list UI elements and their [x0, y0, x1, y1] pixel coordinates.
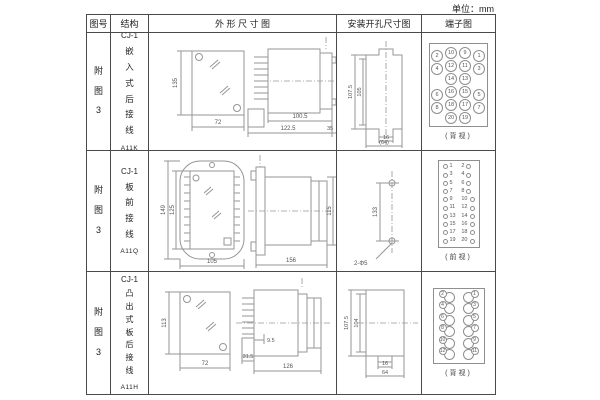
page: 单位：mm 图号 结构 外 形 尺 寸 图 安装开孔尺寸图 端子图 附图3 CJ…: [0, 0, 600, 400]
header-figure-no: 图号: [87, 15, 111, 33]
terminal-number: 17: [450, 230, 456, 236]
terminal-hole: [443, 181, 448, 186]
terminal-pin: 9: [459, 47, 471, 59]
terminal-hole: [443, 206, 448, 211]
terminal-number: 3: [450, 172, 453, 178]
structure-prefix-a11q: CJ-1: [121, 167, 138, 176]
terminal-hole: [466, 181, 471, 186]
outline-drawing-a11h: 113 72: [150, 274, 336, 392]
terminal-number: 1: [471, 290, 479, 298]
structure-prefix-a11k: CJ-1: [121, 33, 138, 40]
dim-tab-width-a11h: 16: [381, 361, 387, 367]
terminal-number: 6: [439, 313, 447, 321]
terminal-pin: 1: [473, 50, 485, 62]
dim-front-height-a11h: 113: [162, 318, 168, 328]
terminal-number: 5: [450, 181, 453, 187]
terminal-number: 6: [461, 181, 464, 187]
side-view-a11q: 156 115: [248, 155, 336, 268]
dim-total-width-a11h: 64: [381, 370, 387, 376]
terminal-pin: 13: [459, 73, 471, 85]
header-terminal-diagram: 端子图: [422, 15, 495, 33]
terminal-left-column: 1 3 5 7 9 11 13 15 17 19: [443, 164, 456, 244]
front-view-a11h: 113 72: [162, 292, 230, 371]
figure-no-a11h: 附图3: [94, 303, 103, 362]
terminal-diagram-a11q: 1 3 5 7 9 11 13 15 17 19 2 4 6 8 10: [438, 160, 480, 248]
structure-prefix-a11h: CJ-1: [121, 275, 138, 284]
terminal-hole: [470, 239, 475, 244]
terminal-pin: 16: [445, 86, 457, 98]
header-structure: 结构: [111, 15, 149, 33]
terminal-hole: [470, 214, 475, 219]
terminal-number: 4: [461, 172, 464, 178]
terminal-number: 8: [461, 189, 464, 195]
terminal-caption-a11q: (前视): [445, 252, 472, 262]
terminal-hole: [470, 197, 475, 202]
structure-name-a11k: 嵌入式后接线: [125, 44, 134, 138]
front-view-a11k: 135 72: [173, 51, 244, 131]
dim-side-length-a11q: 156: [285, 258, 296, 264]
terminal-hole: [443, 164, 448, 169]
side-view-a11h: 9.5 31.5 126: [236, 278, 330, 374]
structure-model-a11q: A11Q: [120, 248, 138, 255]
terminal-number: 8: [439, 324, 447, 332]
terminal-number: 2: [439, 290, 447, 298]
terminal-pin: 17: [459, 99, 471, 111]
outline-drawing-a11q: 149 125 105: [150, 153, 336, 270]
dim-total-width-a11k: (64): [379, 140, 389, 146]
terminal-number: 7: [450, 189, 453, 195]
terminal-hole: [443, 230, 448, 235]
dim-front-width-a11q: 105: [206, 259, 217, 265]
terminal-pin: 18: [445, 99, 457, 111]
terminal-number: 19: [450, 238, 456, 244]
terminal-caption-a11k: (背视): [445, 131, 472, 141]
terminal-pin: 4: [431, 63, 443, 75]
terminal-diagram-a11k: 2 10 9 1 4 12 11 3 14 13 6 16 15 5 8 18 …: [429, 43, 488, 127]
terminal-cell-a11k: 2 10 9 1 4 12 11 3 14 13 6 16 15 5 8 18 …: [422, 33, 495, 151]
outline-cell-a11k: 135 72 1: [149, 33, 337, 151]
terminal-pin: 14: [445, 73, 457, 85]
terminal-number: 18: [461, 230, 467, 236]
dim-outer-height-a11q: 149: [161, 204, 167, 215]
install-drawing-a11k: 107.5 105 16 (64): [338, 35, 421, 149]
terminal-pin: 7: [473, 102, 485, 114]
terminal-pin: 20: [445, 112, 457, 124]
terminal-cell-a11h: 2 1 4 3 6 5 8 7 10 9: [422, 272, 495, 394]
dim-side-height-a11q: 115: [327, 205, 333, 215]
structure-cell-a11q: CJ-1 板前接线 A11Q: [111, 151, 149, 272]
install-drawing-a11q: 133 2-Φ5: [338, 153, 421, 270]
terminal-number: 12: [439, 347, 447, 355]
terminal-pin: 8: [431, 102, 443, 114]
side-view-a11k: 100.5 122.5 35: [248, 37, 336, 137]
terminal-number: 13: [450, 214, 456, 220]
terminal-number: 3: [471, 301, 479, 309]
hole-label-a11q: 2-Φ5: [354, 261, 368, 267]
terminal-number: 7: [471, 324, 479, 332]
structure-name-a11h: 凸出式板后接线: [126, 288, 134, 378]
terminal-pin: 10: [445, 47, 457, 59]
terminal-pin: 11: [459, 60, 471, 72]
terminal-number: 16: [461, 222, 467, 228]
dim-body-length-a11k: 100.5: [292, 114, 308, 120]
terminal-number: 20: [461, 238, 467, 244]
terminal-pin: 19: [459, 112, 471, 124]
terminal-hole: [466, 164, 471, 169]
terminal-number: 2: [461, 164, 464, 170]
dim-front-height-a11k: 135: [173, 77, 179, 88]
figure-no-a11k: 附图3: [94, 62, 103, 121]
terminal-pin: 15: [459, 86, 471, 98]
outline-cell-a11h: 113 72: [149, 272, 337, 394]
structure-cell-a11h: CJ-1 凸出式板后接线 A11H: [111, 272, 149, 394]
terminal-number: 9: [471, 336, 479, 344]
terminal-number: 15: [450, 222, 456, 228]
spec-table: 图号 结构 外 形 尺 寸 图 安装开孔尺寸图 端子图 附图3 CJ-1 嵌入式…: [86, 14, 496, 395]
dim-pin-length-a11h: 9.5: [267, 338, 275, 344]
header-outline-dims: 外 形 尺 寸 图: [149, 15, 337, 33]
terminal-hole: [443, 197, 448, 202]
dim-base-width-a11h: 31.5: [242, 354, 253, 360]
terminal-diagram-a11h: 2 1 4 3 6 5 8 7 10 9: [433, 288, 485, 364]
terminal-number: 12: [461, 205, 467, 211]
install-cell-a11h: 107.5 104 16 64: [337, 272, 422, 394]
figure-no-cell-a11q: 附图3: [87, 151, 111, 272]
terminal-number: 11: [450, 205, 456, 211]
terminal-hole: [470, 230, 475, 235]
dim-total-length-a11h: 126: [282, 364, 293, 370]
dim-cutout-inner-a11k: 105: [357, 87, 363, 96]
dim-rear-length-a11k: 35: [326, 126, 332, 132]
terminal-number: 1: [450, 164, 453, 170]
terminal-hole: [470, 206, 475, 211]
dim-cutout-outer-a11k: 107.5: [348, 85, 354, 99]
terminal-pin: 3: [473, 63, 485, 75]
install-drawing-a11h: 107.5 104 16 64: [338, 274, 421, 392]
header-install-dims: 安装开孔尺寸图: [337, 15, 422, 33]
outline-drawing-a11k: 135 72 1: [150, 35, 336, 149]
install-cell-a11k: 107.5 105 16 (64): [337, 33, 422, 151]
terminal-number: 10: [461, 197, 467, 203]
terminal-cell-a11q: 1 3 5 7 9 11 13 15 17 19 2 4 6 8 10: [422, 151, 495, 272]
terminal-pin: 12: [445, 60, 457, 72]
figure-no-cell-a11k: 附图3: [87, 33, 111, 151]
terminal-right-column: 2 4 6 8 10 12 14 16 18 20: [461, 164, 474, 244]
terminal-pin: 6: [431, 89, 443, 101]
terminal-hole: [443, 173, 448, 178]
terminal-hole: [470, 222, 475, 227]
terminal-number: 14: [461, 214, 467, 220]
terminal-number: 11: [471, 347, 479, 355]
dim-cutout-inner-a11h: 104: [354, 318, 360, 327]
terminal-hole: [443, 214, 448, 219]
terminal-number: 9: [450, 197, 453, 203]
install-cell-a11q: 133 2-Φ5: [337, 151, 422, 272]
structure-model-a11h: A11H: [121, 384, 139, 391]
terminal-number: 10: [439, 336, 447, 344]
front-view-a11q: 149 125 105: [161, 161, 244, 269]
terminal-number: 5: [471, 313, 479, 321]
dim-front-width-a11k: 72: [214, 120, 221, 126]
structure-name-a11q: 板前接线: [125, 180, 134, 243]
figure-no-a11q: 附图3: [94, 181, 103, 240]
structure-cell-a11k: CJ-1 嵌入式后接线 A11K: [111, 33, 149, 151]
dim-inner-height-a11q: 125: [170, 204, 176, 215]
terminal-pin: 2: [431, 50, 443, 62]
terminal-hole: [466, 173, 471, 178]
terminal-hole: [466, 189, 471, 194]
dim-cutout-outer-a11h: 107.5: [344, 316, 350, 330]
terminal-number: 4: [439, 301, 447, 309]
terminal-hole: [443, 189, 448, 194]
terminal-hole: [443, 222, 448, 227]
outline-cell-a11q: 149 125 105: [149, 151, 337, 272]
dim-hole-spacing-a11q: 133: [373, 206, 379, 217]
terminal-hole: [443, 239, 448, 244]
terminal-pin: 5: [473, 89, 485, 101]
figure-no-cell-a11h: 附图3: [87, 272, 111, 394]
dim-front-width-a11h: 72: [201, 361, 208, 367]
terminal-caption-a11h: (背视): [445, 368, 472, 378]
dim-total-length-a11k: 122.5: [280, 126, 296, 132]
